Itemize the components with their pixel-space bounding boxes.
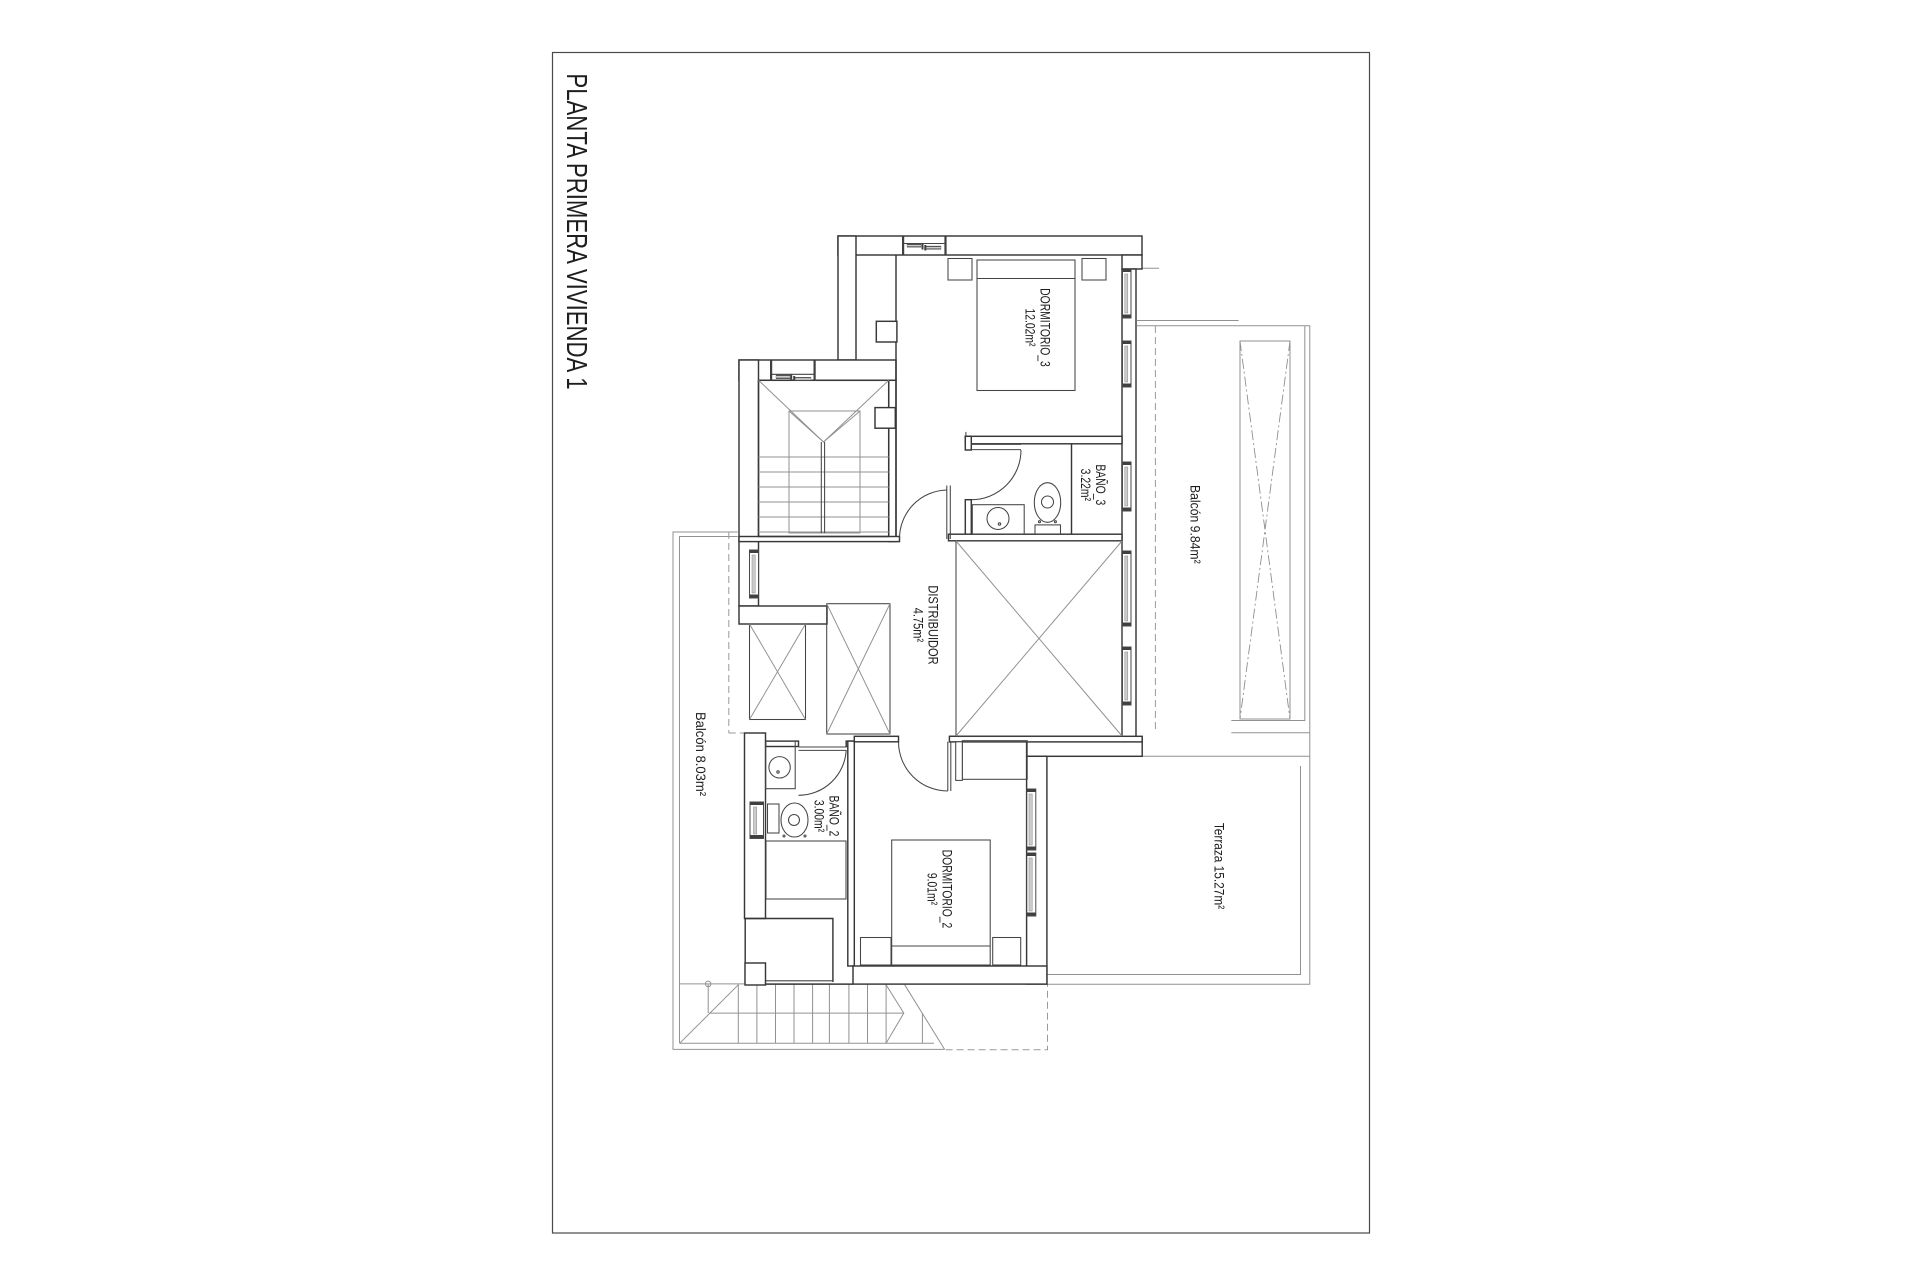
svg-text:Terraza 15.27m²: Terraza 15.27m² xyxy=(1211,823,1227,910)
svg-text:Balcón 8.03m²: Balcón 8.03m² xyxy=(693,712,709,797)
svg-text:12.02m²: 12.02m² xyxy=(1022,308,1038,346)
svg-text:PLANTA PRIMERA VIVIENDA 1: PLANTA PRIMERA VIVIENDA 1 xyxy=(560,73,591,389)
svg-text:3.00m²: 3.00m² xyxy=(811,800,827,832)
svg-text:BAÑO_3: BAÑO_3 xyxy=(1093,464,1109,505)
svg-text:DORMITORIO_3: DORMITORIO_3 xyxy=(1037,288,1053,367)
svg-text:4.75m²: 4.75m² xyxy=(910,608,927,642)
svg-text:Balcón 9.84m²: Balcón 9.84m² xyxy=(1187,485,1203,564)
svg-text:9.01m²: 9.01m² xyxy=(924,873,940,905)
svg-text:DORMITORIO_2: DORMITORIO_2 xyxy=(939,850,955,929)
svg-text:3.22m²: 3.22m² xyxy=(1078,469,1094,501)
svg-text:BAÑO_2: BAÑO_2 xyxy=(826,796,842,837)
